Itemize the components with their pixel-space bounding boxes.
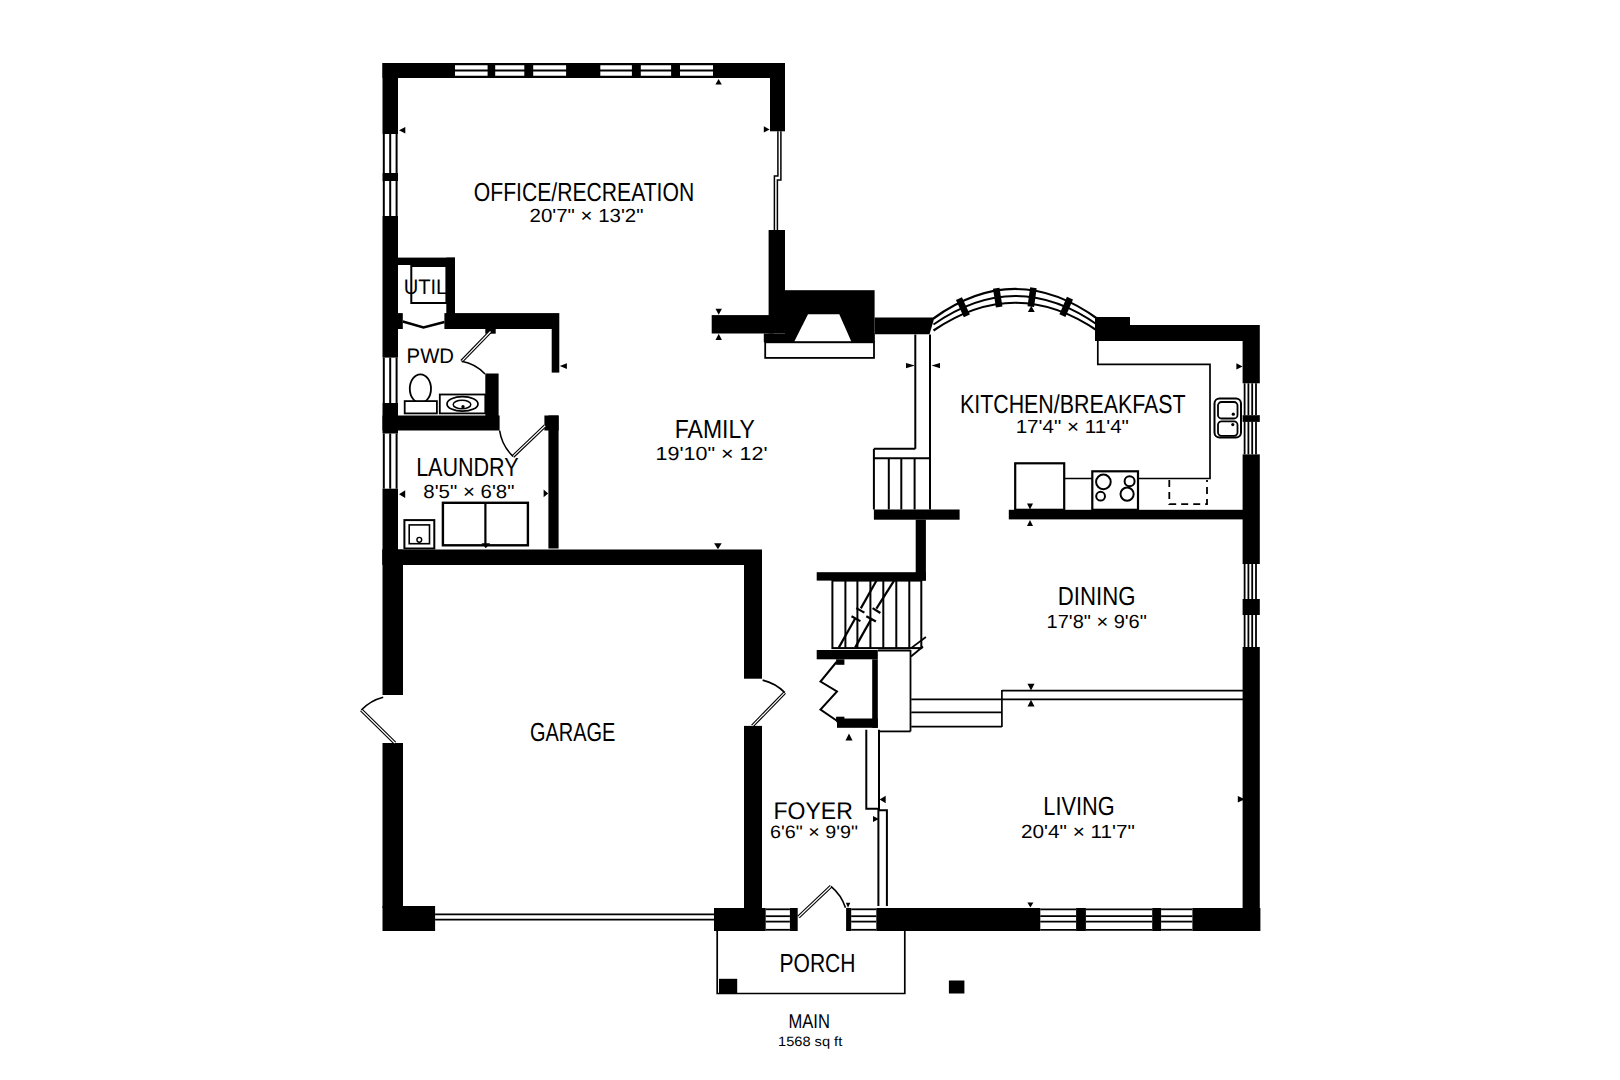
svg-text:UTIL: UTIL xyxy=(404,276,448,299)
svg-text:GARAGE: GARAGE xyxy=(530,717,615,747)
svg-text:19'10" × 12': 19'10" × 12' xyxy=(656,444,768,465)
svg-text:OFFICE/RECREATION: OFFICE/RECREATION xyxy=(474,177,694,207)
svg-text:1568 sq ft: 1568 sq ft xyxy=(778,1034,842,1049)
svg-text:DINING: DINING xyxy=(1058,581,1136,611)
svg-text:20'7" × 13'2": 20'7" × 13'2" xyxy=(530,206,644,227)
svg-text:20'4" × 11'7": 20'4" × 11'7" xyxy=(1021,822,1135,843)
svg-text:KITCHEN/BREAKFAST: KITCHEN/BREAKFAST xyxy=(960,389,1186,419)
svg-text:LAUNDRY: LAUNDRY xyxy=(416,452,519,482)
svg-text:LIVING: LIVING xyxy=(1043,791,1114,821)
svg-text:PORCH: PORCH xyxy=(780,948,856,978)
svg-text:17'8" × 9'6": 17'8" × 9'6" xyxy=(1047,612,1147,633)
svg-text:PWD: PWD xyxy=(407,345,454,368)
svg-text:17'4" × 11'4": 17'4" × 11'4" xyxy=(1016,417,1129,438)
svg-text:FOYER: FOYER xyxy=(774,798,853,825)
svg-text:6'6" × 9'9": 6'6" × 9'9" xyxy=(770,822,858,842)
svg-text:8'5" × 6'8": 8'5" × 6'8" xyxy=(423,482,514,503)
svg-text:FAMILY: FAMILY xyxy=(675,414,755,444)
svg-text:MAIN: MAIN xyxy=(789,1011,830,1033)
